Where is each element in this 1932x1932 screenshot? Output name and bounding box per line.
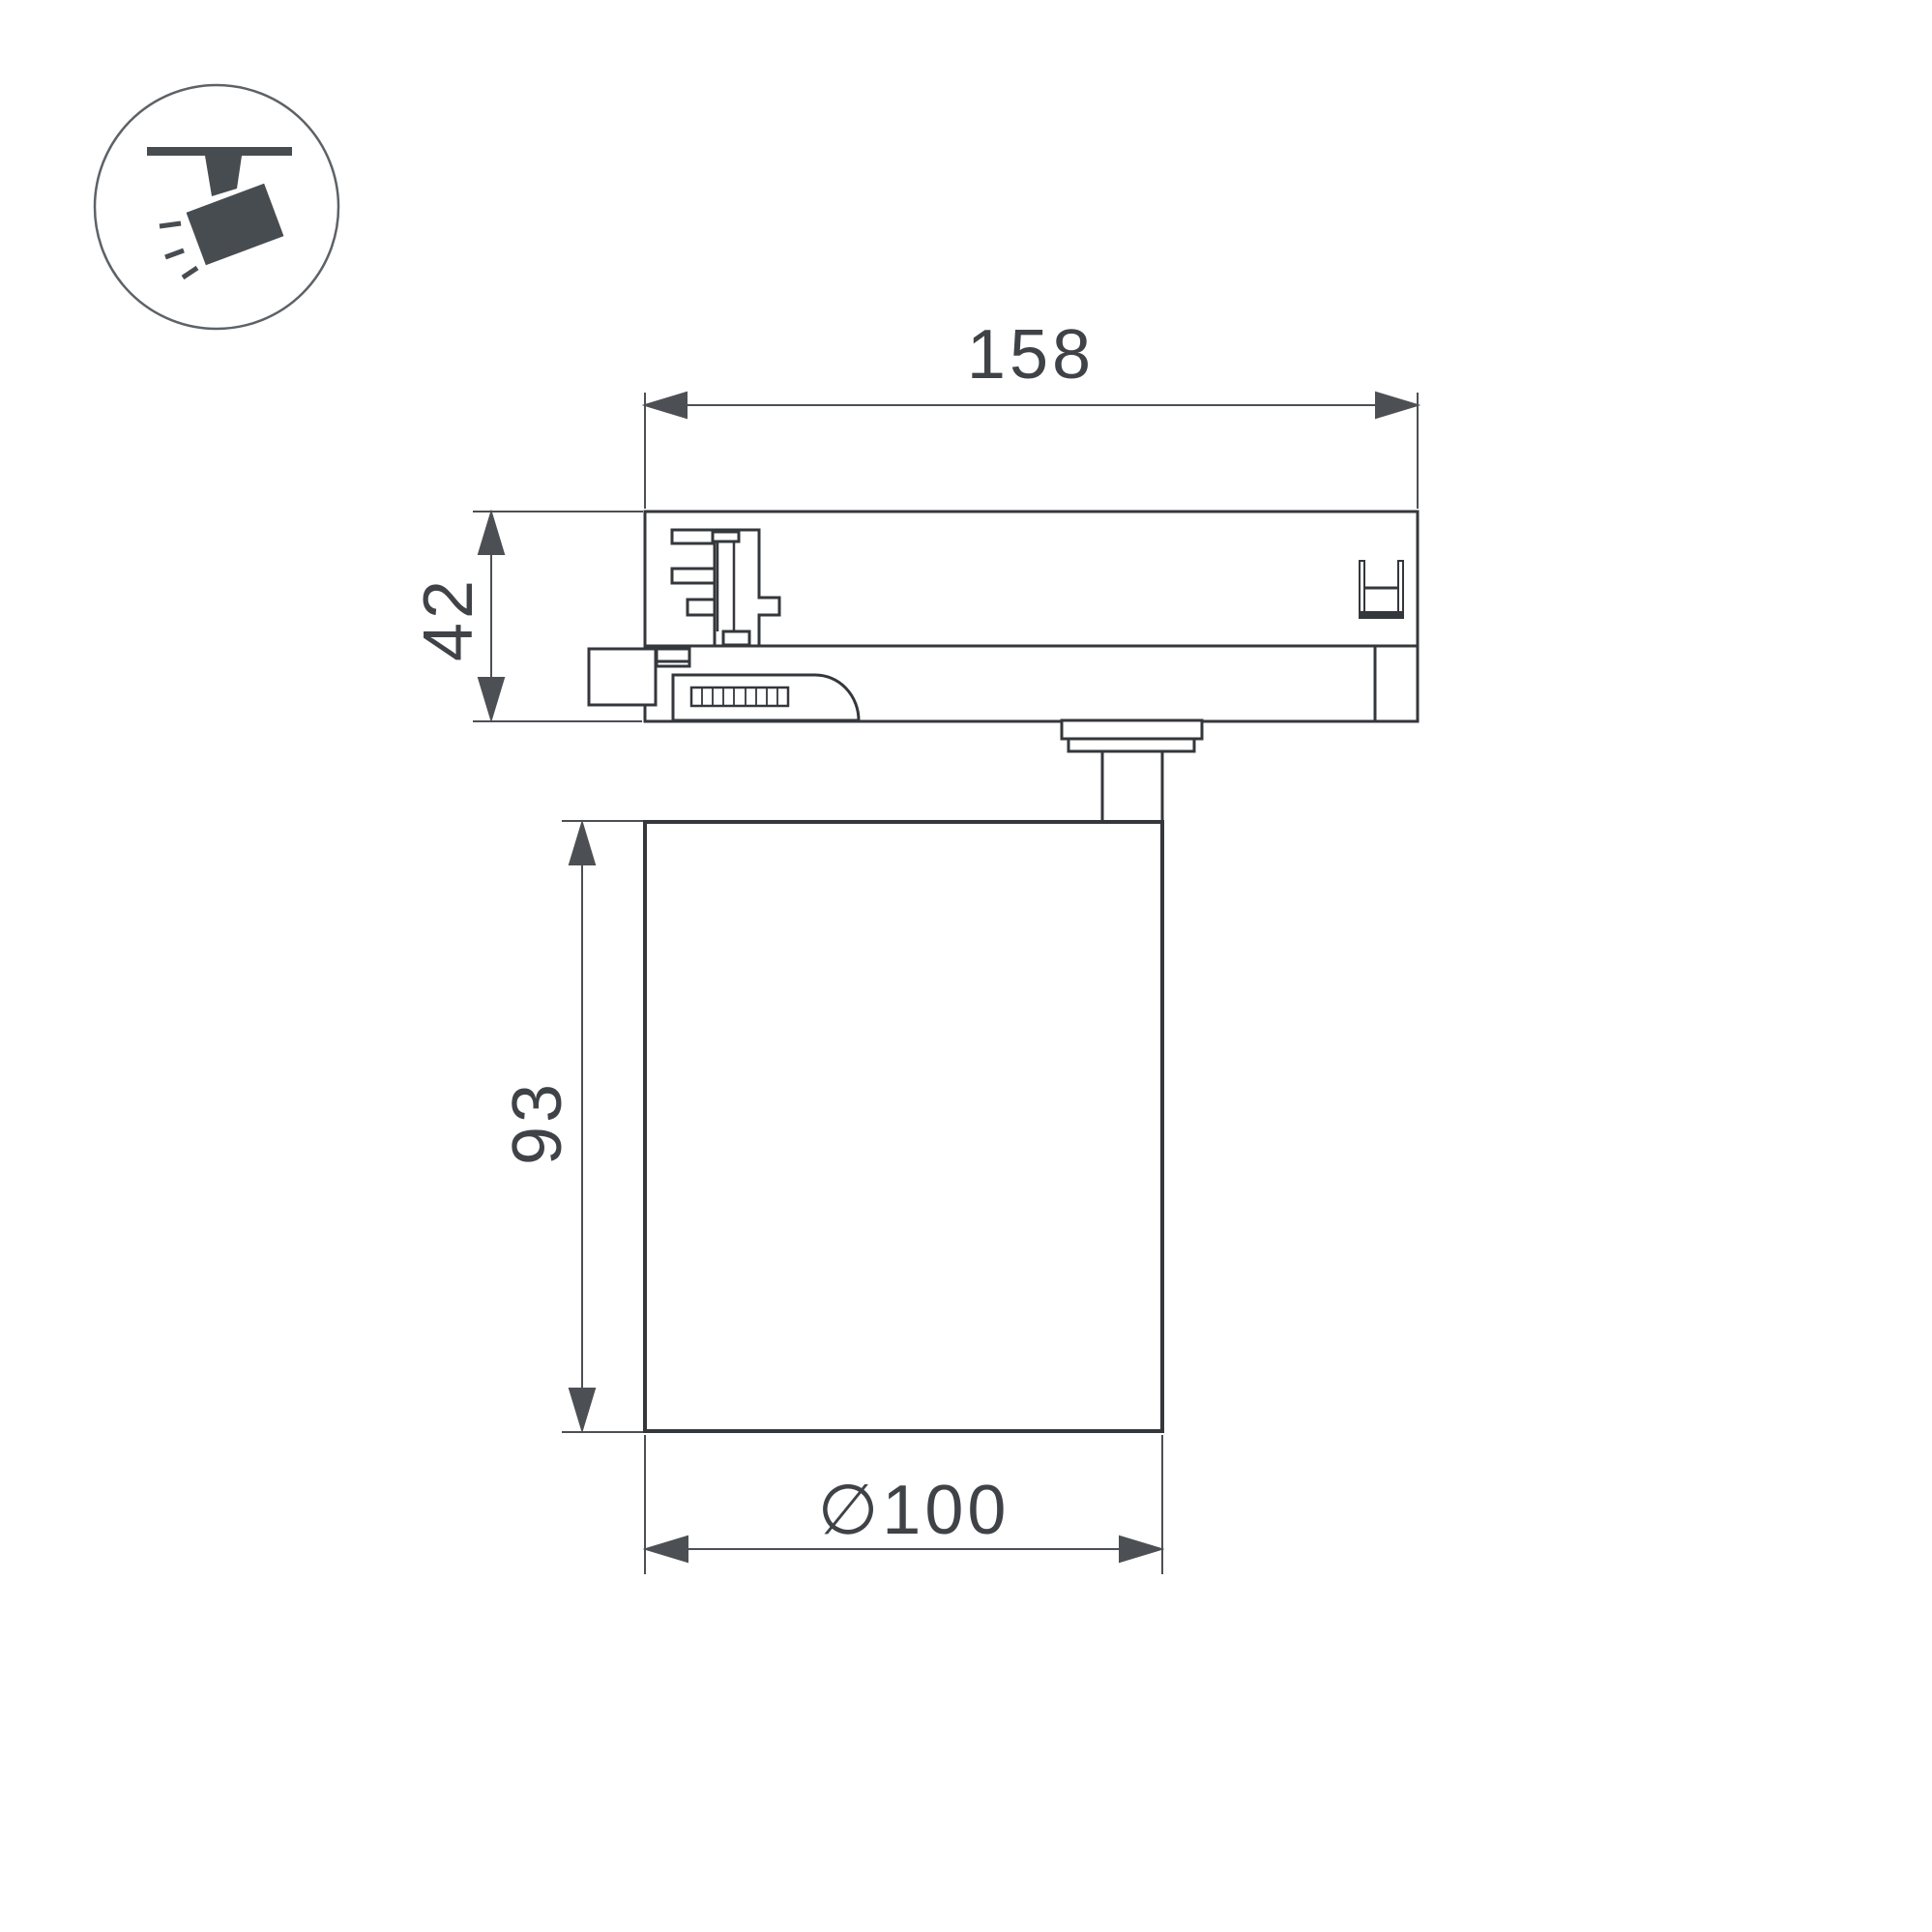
- arrowhead-down: [479, 678, 504, 719]
- dim-label-adapter-height: 42: [410, 576, 487, 661]
- light-ray-icon: [160, 223, 181, 226]
- mount-step-upper: [1062, 720, 1202, 739]
- contact-pin: [672, 530, 715, 543]
- hook-left-wall: [1360, 561, 1364, 616]
- arrowhead-down: [570, 1389, 595, 1430]
- dim-label-body-height: 93: [499, 1080, 576, 1165]
- mount-stem: [1102, 751, 1162, 823]
- drawing-canvas: 158 42 93 ∅100: [0, 0, 1932, 1932]
- arrowhead-right: [1376, 393, 1418, 418]
- track-adapter-housing: [645, 512, 1418, 646]
- hook-right-wall: [1398, 561, 1403, 616]
- dim-adapter-length: [645, 393, 1418, 509]
- fixture-outline: [589, 512, 1418, 1431]
- contact-foot: [723, 631, 749, 645]
- product-view-badge: [95, 85, 338, 329]
- icon-track-bar: [147, 147, 292, 156]
- contact-pin: [672, 569, 715, 583]
- latch-block: [657, 649, 689, 666]
- dim-label-body-diameter: ∅100: [818, 1472, 1010, 1549]
- dip-selector-frame: [691, 688, 788, 706]
- arrowhead-left: [645, 393, 687, 418]
- contact-pin: [688, 600, 715, 615]
- arrowhead-right: [1120, 1537, 1161, 1562]
- lock-lever: [589, 649, 656, 705]
- technical-drawing: 158 42 93 ∅100: [0, 0, 1932, 1932]
- lamp-body: [645, 822, 1162, 1431]
- dim-label-adapter-length: 158: [967, 316, 1095, 394]
- dip-selector: [691, 688, 788, 706]
- contact-cap: [713, 532, 739, 542]
- arrowhead-up: [570, 823, 595, 864]
- arrowhead-up: [479, 512, 504, 554]
- arrowhead-left: [646, 1537, 688, 1562]
- mount-step-lower: [1068, 739, 1194, 751]
